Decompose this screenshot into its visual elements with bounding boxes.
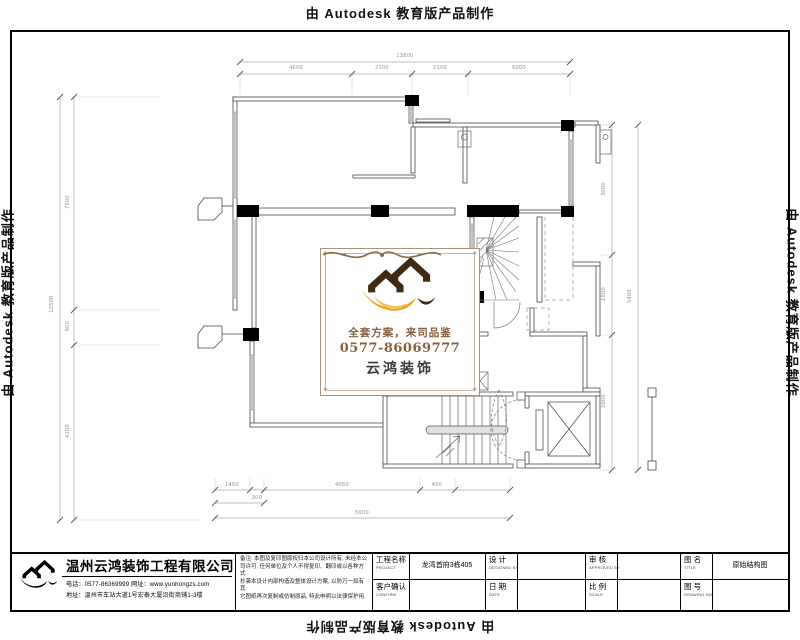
stamp-corner-ornament: ✦ [322, 386, 329, 394]
titleblock-top-line [10, 552, 788, 554]
field-scale-label: 比 例 SCALE [589, 583, 606, 599]
field-design-label: 设 计 DESIGNED BY [489, 556, 519, 572]
dim-label: 1450 [212, 482, 252, 488]
stamp-slogan: 全套方案，来司品鉴 [321, 325, 479, 340]
dim-label: 5400 [627, 276, 633, 316]
titleblock-divider [585, 552, 586, 610]
dim-label: 2100 [362, 65, 402, 71]
dim-label: 1800 [601, 274, 607, 314]
field-number-label: 图 号 DRAWING NO [684, 583, 712, 599]
notes-line: 司许可, 任何单位及个人不得复印、翻印或以各种方式 [240, 564, 368, 579]
field-title-value: 原始结构图 [713, 560, 787, 570]
company-web: 网址：www.yunhongzs.com [131, 582, 209, 588]
flourish-divider-icon [321, 249, 443, 261]
brand-stamp: ✦ ✦ ✦ ✦ 全套方案，来司品鉴 0577-86069777 云鸿装饰 [320, 248, 480, 396]
dim-label: 7500 [65, 182, 71, 222]
field-date-label: 日 期 DATE [489, 583, 506, 599]
company-name: 温州云鸿装饰工程有限公司 [66, 555, 234, 575]
dim-label: 4600 [276, 65, 316, 71]
dim-label: 5000 [499, 65, 539, 71]
dim-label: 2000 [601, 381, 607, 421]
notes-line: 抄袭本设计内部构造及整体设计方案, 以防万一如有其 [240, 579, 368, 594]
dim-label: 2100 [420, 65, 460, 71]
dim-label: 5900 [342, 510, 382, 516]
titleblock-divider [680, 552, 681, 610]
titleblock-divider [235, 552, 236, 610]
stamp-corner-ornament: ✦ [471, 386, 478, 394]
dim-label: 4100 [65, 411, 71, 451]
dim-label: 4050 [322, 482, 362, 488]
elevator [536, 402, 590, 456]
titleblock-row-line [372, 579, 788, 580]
field-project-label: 工程名称 PROJECT [376, 556, 406, 572]
dim-label: 450 [417, 482, 457, 488]
company-tel: 电话：0577-86369999 [66, 582, 129, 588]
stamp-corner-ornament: ✦ [471, 250, 478, 258]
roof-bird-logo-icon [352, 257, 448, 319]
titleblock-divider [372, 552, 373, 610]
notes-line: 备注: 本图及复印图版权归本公司设计所有, 未经本公 [240, 556, 368, 564]
titleblock-notes: 备注: 本图及复印图版权归本公司设计所有, 未经本公 司许可, 任何单位及个人不… [240, 556, 368, 601]
notes-line: 它图纸再次复制或仿制原品, 特此申明以法律保护用. [240, 594, 368, 602]
company-underline [62, 576, 232, 577]
straight-staircase [426, 396, 508, 464]
company-logo-icon [16, 558, 62, 594]
dim-label: 900 [65, 306, 71, 346]
field-approve-label: 审 核 APPROVED BY [589, 556, 620, 572]
titleblock-divider [485, 552, 486, 610]
dim-label: 300 [237, 495, 277, 501]
company-address: 地址：温州市车站大道1号宏泰大厦沿街商铺1-3楼 [66, 590, 203, 599]
field-title-label: 图 名 TITLE [684, 556, 701, 572]
field-confirm-label: 客户确认 CONFIRM [376, 583, 406, 599]
dim-label: 13800 [385, 53, 425, 59]
stamp-brand-name: 云鸿装饰 [321, 358, 479, 378]
doors [491, 302, 525, 468]
dim-label: 12500 [49, 284, 55, 324]
field-project-value: 龙湾首府3栋405 [410, 560, 484, 570]
stamp-phone: 0577-86069777 [321, 341, 479, 356]
drawing-sheet: 由 Autodesk 教育版产品制作 由 Autodesk 教育版产品制作 由 … [0, 0, 800, 640]
company-contact-line: 电话：0577-86369999 网址：www.yunhongzs.com [66, 579, 209, 588]
dim-label: 3000 [601, 169, 607, 209]
